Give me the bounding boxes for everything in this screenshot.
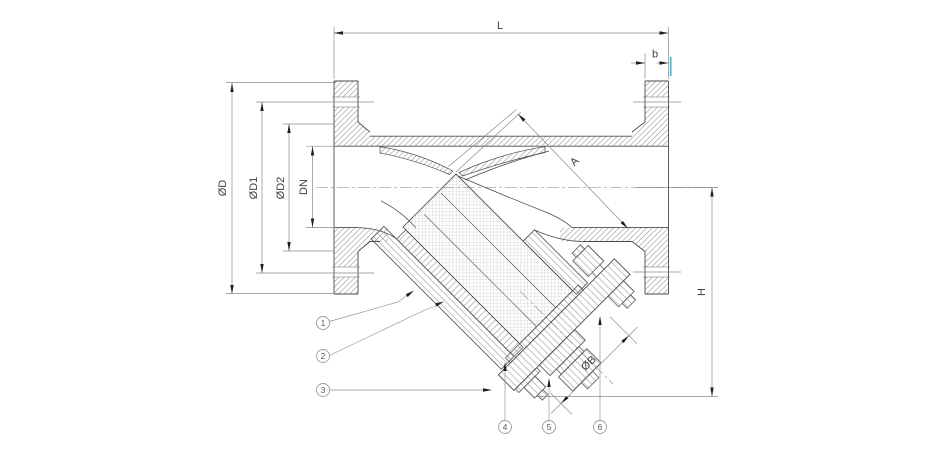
dim-line-b [631,53,669,79]
callout-number: 5 [547,422,552,432]
callout-4: 4 [499,421,512,434]
callout-number: 4 [503,422,508,432]
left-flange-bolt-hole-bottom [334,267,358,277]
dim-label-A: A [568,155,582,169]
left-flange-upper-section [334,81,370,146]
strainer-branch: ØB [367,127,677,437]
callout-number: 6 [598,422,603,432]
callout-number: 2 [321,351,326,361]
left-flange-lower-section [334,228,370,294]
callout-2: 2 [317,350,330,363]
dim-label-OD1: ØD1 [248,177,260,200]
pipe-bottom-wall-right [560,228,632,242]
right-flange-lower-section [632,228,669,294]
dim-label-DN: DN [298,179,310,195]
callout-number: 1 [321,318,326,328]
callout-1: 1 [317,317,330,330]
highlight-tick [670,57,672,76]
y-strainer-drawing-canvas: ØB L b ØD ØD1 ØD2 DN A H 1 [0,0,940,450]
dim-label-L: L [497,20,503,32]
left-funnel-crescent [380,147,453,175]
dim-label-OD2: ØD2 [275,177,287,200]
dim-line-DN [306,146,335,227]
dim-label-H: H [696,288,708,296]
callout-number: 3 [321,385,326,395]
dim-label-OD: ØD [217,180,229,197]
callout-6: 6 [594,421,607,434]
leader-1 [329,295,407,322]
leader-2 [329,306,436,356]
callout-5: 5 [543,421,556,434]
right-funnel-crescent [459,147,545,176]
pipe-top-wall [370,136,632,146]
right-flange-upper-section [632,81,669,146]
dim-label-b: b [652,49,658,61]
dim-line-L [334,27,669,79]
y-strainer-technical-drawing: ØB L b ØD ØD1 ØD2 DN A H 1 [0,0,940,450]
callout-3: 3 [317,384,330,397]
